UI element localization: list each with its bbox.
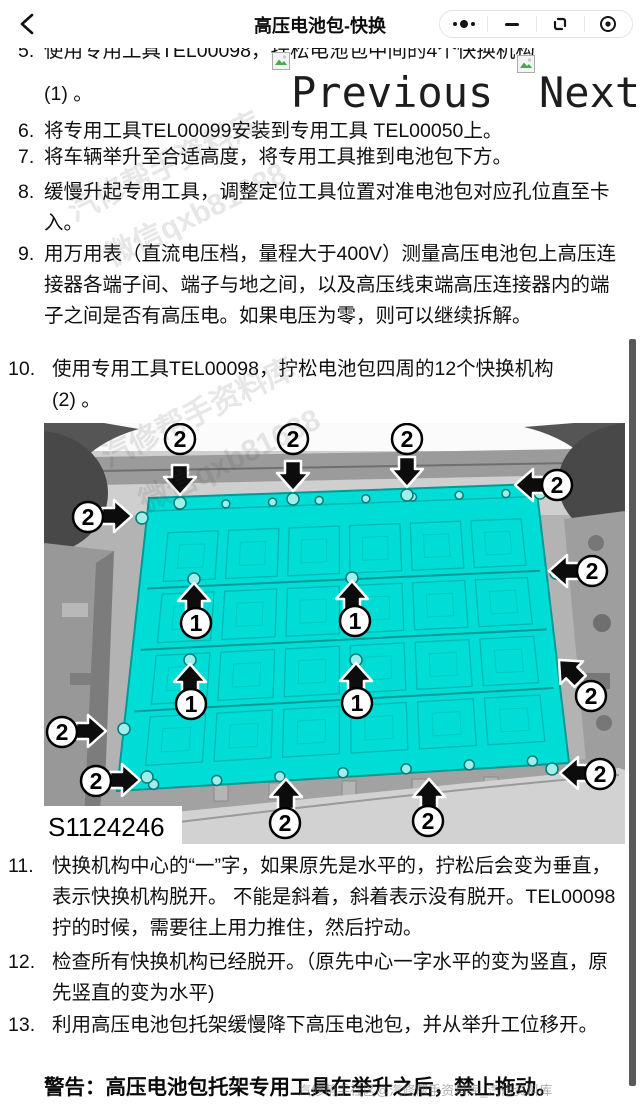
step-number: 11. [8,851,52,944]
step-item: 10. 使用专用工具TEL00098，拧松电池包四周的12个快换机构 [0,354,626,385]
step-item: 13. 利用高压电池包托架缓慢降下高压电池包，并从举升工位移开。 [0,1010,626,1041]
arrow-number-badge: 2 [576,681,606,711]
step-number: 8. [18,177,44,239]
minimize-icon [505,23,519,26]
arrow-number-badge: 1 [181,608,211,638]
mini-program-screen: 汽修帮手资料库 微信qxb81688 汽修帮手资料库 微信qxb81688 汽修… [0,0,640,1110]
step-item: 8. 缓慢升起专用工具，调整定位工具位置对准电池包对应孔位直至卡入。 [0,177,626,239]
svg-text:1: 1 [185,691,198,717]
svg-text:2: 2 [586,558,599,584]
step-number: 12. [8,947,52,1009]
more-dots-icon [453,20,475,28]
warning-label: 警告： [44,1076,106,1099]
svg-text:2: 2 [585,683,598,709]
svg-text:2: 2 [401,426,414,452]
more-options-button[interactable] [440,11,487,37]
step-text: 用万用表（直流电压档，量程大于400V）测量高压电池包上高压连接器各端子间、端子… [44,239,626,332]
arrow-number-badge: 2 [278,424,308,454]
step-text: 将车辆举升至合适高度，将专用工具推到电池包下方。 [44,142,626,173]
step-item: 11. 快换机构中心的“一”字，如果原先是水平的，拧松后会变为垂直，表示快换机构… [0,851,626,944]
window-capsule [439,10,633,38]
close-circle-button[interactable] [585,11,632,37]
step-item: 7. 将车辆举升至合适高度，将专用工具推到电池包下方。 [0,142,626,173]
step-item: 12. 检查所有快换机构已经脱开。（原先中心一字水平的变为竖直，原先竖直的变为水… [0,947,626,1009]
svg-text:2: 2 [82,504,95,530]
step-continuation: (1) 。 [44,79,93,110]
previous-link[interactable]: Previous [291,68,493,117]
watermark: 汽修帮手社区@汽修帮手资料库_汽修资料库 [298,1080,552,1099]
arrow-number-badge: 2 [270,808,300,838]
minimize-button[interactable] [488,11,535,37]
arrow-number-badge: 2 [73,502,103,532]
svg-text:2: 2 [594,761,607,787]
arrow-number-badge: 2 [542,470,572,500]
step-text: 检查所有快换机构已经脱开。（原先中心一字水平的变为竖直，原先竖直的变为水平) [52,947,626,1009]
svg-text:2: 2 [551,472,564,498]
circle-dot-icon [599,15,617,33]
svg-text:2: 2 [287,426,300,452]
svg-text:2: 2 [174,426,187,452]
arrow-number-badge: 2 [165,424,195,454]
next-link[interactable]: Next [539,68,640,117]
arrow-number-badge: 2 [392,424,422,454]
arrow-number-badge: 2 [413,806,443,836]
arrow-number-badge: 2 [585,759,615,789]
figure-battery-diagram: S1124246 2222221111222222 [44,423,625,844]
scrollbar-thumb[interactable] [629,339,636,1086]
step-text: 使用专用工具TEL00098，拧松电池包四周的12个快换机构 [52,354,626,385]
restore-window-icon [552,16,568,32]
arrow-number-badge: 2 [47,717,77,747]
step-continuation: (2) 。 [52,385,101,416]
svg-text:1: 1 [349,608,362,634]
step-number: 9. [18,239,44,332]
arrow-number-badge: 1 [340,606,370,636]
step-text: 缓慢升起专用工具，调整定位工具位置对准电池包对应孔位直至卡入。 [44,177,626,239]
step-number: 10. [8,354,52,385]
arrow-number-badge: 2 [577,556,607,586]
app-header: 高压电池包-快换 [0,0,640,48]
step-text: 快换机构中心的“一”字，如果原先是水平的，拧松后会变为垂直，表示快换机构脱开。 … [52,851,626,944]
restore-window-button[interactable] [537,11,584,37]
svg-text:2: 2 [422,808,435,834]
broken-image-icon [272,52,290,70]
step-item: 9. 用万用表（直流电压档，量程大于400V）测量高压电池包上高压连接器各端子间… [0,239,626,332]
svg-text:2: 2 [279,810,292,836]
svg-text:1: 1 [190,610,203,636]
step-number: 7. [18,142,44,173]
svg-text:1: 1 [351,690,364,716]
arrow-number-badge: 1 [342,688,372,718]
step-number: 13. [8,1010,52,1041]
svg-text:2: 2 [56,719,69,745]
step-text: 利用高压电池包托架缓慢降下高压电池包，并从举升工位移开。 [52,1010,626,1041]
broken-image-icon [517,55,535,73]
arrow-number-badge: 1 [176,689,206,719]
svg-text:2: 2 [90,768,103,794]
arrow-number-badge: 2 [81,766,111,796]
figure-code-label: S1124246 [48,812,165,842]
